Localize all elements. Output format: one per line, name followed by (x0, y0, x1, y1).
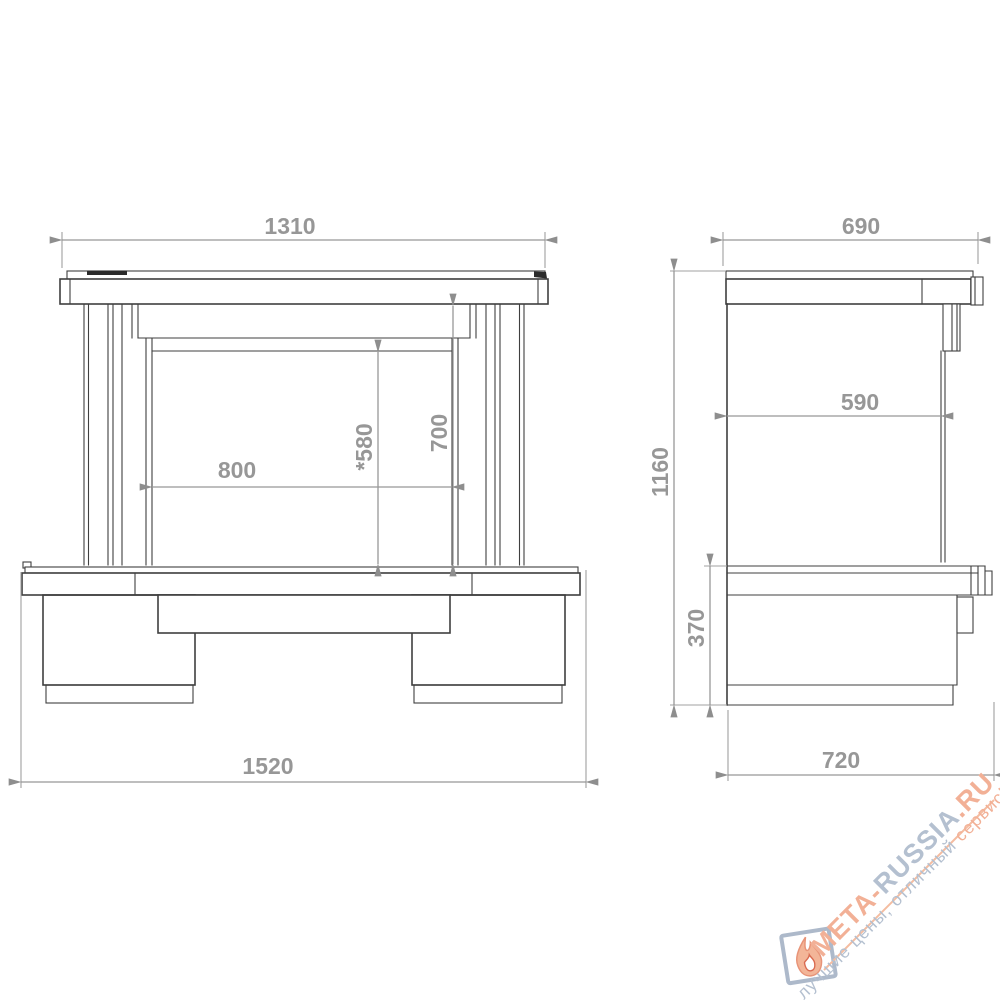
dim-label-580: *580 (351, 423, 377, 470)
side-base-body (727, 595, 957, 685)
dim-label-690: 690 (842, 213, 880, 239)
dimension-370: 370 (683, 566, 727, 705)
dim-label-800: 800 (218, 457, 256, 483)
dimension-720: 720 (728, 702, 994, 781)
dim-label-1160: 1160 (647, 447, 673, 497)
dimension-700: 700 (426, 306, 453, 564)
watermark-site-text: МЕТА-RUSSIA.RU (805, 767, 1000, 962)
side-view (726, 271, 992, 705)
front-left-column (84, 304, 122, 565)
drawing-page: 1310 800 *580 700 1520 690 (0, 0, 1000, 1000)
technical-drawing-canvas: 1310 800 *580 700 1520 690 (0, 0, 1000, 1000)
front-shelf-dark-accent (87, 271, 127, 276)
watermark-tagline-muted: лучшие цены, отличный (793, 831, 965, 1000)
front-base-top-strip (25, 567, 578, 573)
dim-label-1520: 1520 (242, 753, 293, 779)
side-shelf-end-cap (971, 277, 983, 305)
front-center-panel (158, 595, 450, 633)
dim-label-700: 700 (426, 414, 452, 452)
dimension-590: 590 (727, 389, 941, 416)
dimension-690: 690 (723, 213, 978, 266)
front-lintel (138, 338, 470, 351)
dimension-1310: 1310 (62, 213, 545, 268)
side-drawer-block (957, 597, 973, 633)
front-right-plinth (414, 685, 562, 703)
front-shelf-slab (60, 279, 548, 304)
side-shelf-slab (726, 279, 971, 304)
side-plinth (727, 685, 953, 705)
dimension-580: *580 (351, 352, 378, 564)
side-shelf-top-strip (726, 271, 973, 279)
watermark: МЕТА-RUSSIA.RU лучшие цены, отличный сер… (781, 767, 1000, 1000)
dim-label-1310: 1310 (264, 213, 315, 239)
front-shelf-top-strip (67, 271, 545, 279)
side-back-edge (941, 351, 945, 562)
side-base-slab (727, 566, 992, 595)
dim-label-720: 720 (822, 747, 860, 773)
front-left-plinth (46, 685, 193, 703)
dim-label-370: 370 (683, 609, 709, 647)
dimension-800: 800 (152, 457, 452, 487)
front-base-slab (22, 573, 580, 595)
dim-label-590: 590 (841, 389, 879, 415)
front-right-column (486, 304, 524, 565)
watermark-tagline: лучшие цены, отличный сервис! (793, 783, 1000, 1000)
